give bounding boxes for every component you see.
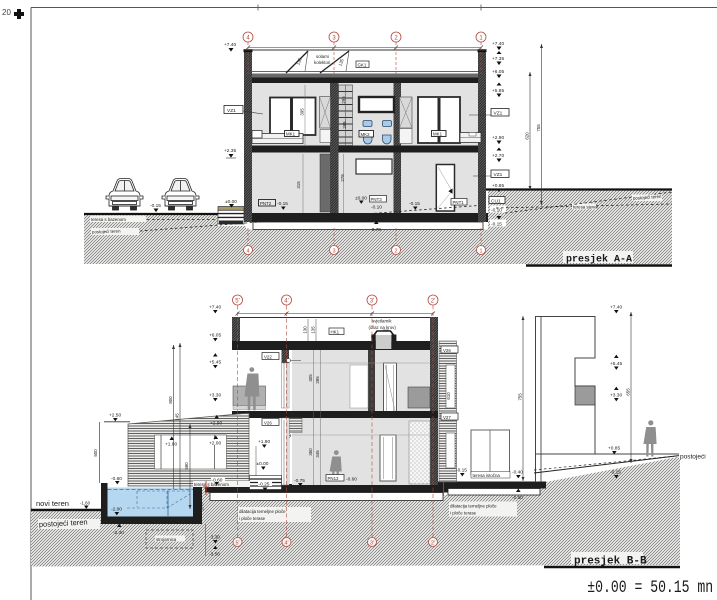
svg-text:-0.15: -0.15 (491, 222, 502, 228)
svg-text:-0.10: -0.10 (491, 208, 502, 214)
svg-text:-0.15: -0.15 (150, 203, 161, 209)
svg-text:+2.70: +2.70 (492, 153, 504, 159)
svg-text:strojarnica: strojarnica (156, 537, 177, 542)
svg-text:-0.15: -0.15 (409, 201, 420, 207)
svg-text:3': 3' (370, 299, 374, 305)
svg-text:(izlaz na krov): (izlaz na krov) (369, 325, 397, 330)
svg-text:teresa sjever: teresa sjever (573, 205, 599, 210)
svg-text:3': 3' (370, 540, 374, 546)
svg-text:+5.45: +5.45 (610, 361, 622, 367)
svg-text:CU1: CU1 (491, 198, 501, 204)
svg-text:dilatacija temeljne ploče: dilatacija temeljne ploče (450, 504, 497, 509)
svg-text:755: 755 (536, 124, 541, 132)
svg-text:4': 4' (284, 299, 288, 305)
svg-text:VZ1: VZ1 (494, 172, 503, 178)
svg-text:+7.35: +7.35 (492, 56, 504, 62)
svg-text:-3.56: -3.56 (209, 552, 220, 558)
svg-text:VZ1: VZ1 (494, 111, 503, 117)
svg-text:kolektori: kolektori (314, 60, 330, 65)
svg-text:i ploče terase: i ploče terase (450, 511, 477, 516)
svg-text:PNT1: PNT1 (453, 200, 465, 205)
svg-text:+1.00: +1.00 (165, 442, 177, 448)
svg-text:-0.15: -0.15 (456, 468, 467, 474)
svg-text:-2.30: -2.30 (113, 530, 124, 536)
svg-text:+2.90: +2.90 (210, 421, 222, 427)
svg-text:MK2: MK2 (361, 132, 371, 137)
svg-text:-0.50: -0.50 (512, 495, 523, 501)
svg-text:655: 655 (626, 388, 631, 396)
svg-text:MK1: MK1 (286, 132, 296, 137)
svg-text:+5.45: +5.45 (209, 360, 221, 366)
svg-text:-0.15: -0.15 (610, 470, 621, 476)
svg-text:MK1: MK1 (433, 132, 443, 137)
svg-text:+3.30: +3.30 (209, 393, 221, 399)
svg-text:-1.60: -1.60 (80, 501, 91, 506)
svg-text:270: 270 (200, 503, 205, 511)
svg-text:+1.90: +1.90 (258, 439, 270, 445)
svg-text:i ploče terase: i ploče terase (239, 516, 266, 521)
svg-text:+6.05: +6.05 (209, 333, 221, 339)
svg-text:GK1: GK1 (358, 62, 367, 67)
svg-text:novi teren: novi teren (36, 499, 69, 508)
svg-text:20: 20 (2, 8, 11, 17)
svg-text:+0.85: +0.85 (608, 446, 620, 452)
svg-text:1: 1 (479, 248, 482, 254)
svg-text:-0.60: -0.60 (346, 477, 357, 483)
svg-text:PNT2: PNT2 (260, 201, 272, 206)
svg-text:+2.00: +2.00 (209, 441, 221, 447)
svg-text:±0.00 = 50.15 mn: ±0.00 = 50.15 mn (587, 577, 713, 597)
svg-text:+6.05: +6.05 (492, 69, 504, 75)
svg-text:teresa s bazenom: teresa s bazenom (91, 217, 126, 222)
svg-text:postojeći: postojeći (680, 454, 706, 461)
svg-text:V27: V27 (443, 415, 451, 420)
svg-text:-2.00: -2.00 (111, 507, 122, 513)
svg-text:+0.85: +0.85 (492, 183, 504, 189)
svg-text:+7.40: +7.40 (224, 42, 236, 48)
svg-text:295: 295 (341, 96, 346, 104)
svg-text:+5.85: +5.85 (492, 88, 504, 94)
svg-text:2: 2 (394, 248, 397, 254)
svg-text:+2.35: +2.35 (224, 148, 236, 154)
svg-text:130: 130 (303, 326, 308, 334)
svg-text:345: 345 (315, 450, 320, 458)
svg-text:V22: V22 (264, 354, 272, 359)
svg-text:395: 395 (300, 108, 305, 116)
svg-text:5': 5' (235, 299, 239, 305)
svg-text:360: 360 (308, 448, 313, 456)
svg-text:dilatacija temeljne ploče: dilatacija temeljne ploče (239, 509, 286, 514)
svg-text:4: 4 (246, 248, 249, 254)
svg-text:presjek A-A: presjek A-A (566, 254, 632, 266)
svg-text:278: 278 (340, 174, 345, 182)
svg-text:V26: V26 (264, 420, 272, 425)
svg-text:+2.50: +2.50 (109, 413, 121, 419)
svg-text:500: 500 (93, 449, 98, 457)
svg-text:+7.40: +7.40 (492, 41, 504, 47)
svg-text:800: 800 (168, 396, 173, 404)
svg-text:-0.25: -0.25 (259, 482, 270, 488)
svg-text:620: 620 (525, 132, 530, 140)
svg-text:3: 3 (332, 248, 335, 254)
svg-text:postojeći teren: postojeći teren (92, 228, 121, 234)
svg-text:solarni: solarni (316, 54, 329, 59)
svg-text:+7.40: +7.40 (610, 305, 622, 311)
svg-text:135: 135 (311, 326, 316, 334)
svg-text:+2.90: +2.90 (492, 135, 504, 141)
svg-text:755: 755 (518, 393, 523, 401)
svg-text:+3.30: +3.30 (610, 393, 622, 399)
svg-text:285: 285 (315, 376, 320, 384)
svg-text:4': 4' (284, 540, 288, 546)
svg-text:-0.10: -0.10 (371, 205, 382, 211)
svg-text:-0.70: -0.70 (370, 227, 381, 233)
svg-text:315: 315 (296, 181, 301, 189)
svg-text:±0.00: ±0.00 (257, 461, 269, 467)
svg-text:145: 145 (175, 413, 180, 421)
svg-text:-0.15: -0.15 (277, 201, 288, 207)
svg-text:580: 580 (184, 462, 189, 470)
svg-text:2': 2' (431, 299, 435, 305)
svg-text:-0.40: -0.40 (512, 470, 523, 476)
svg-text:PNT3: PNT3 (371, 197, 383, 202)
svg-text:+7.40: +7.40 (209, 305, 221, 311)
svg-text:V26: V26 (443, 348, 451, 353)
svg-text:svjetlarnik: svjetlarnik (372, 319, 392, 324)
svg-text:VZ1: VZ1 (227, 108, 236, 114)
svg-text:285: 285 (342, 121, 347, 129)
svg-text:610: 610 (446, 392, 451, 400)
svg-text:teresa istočna: teresa istočna (473, 473, 501, 478)
svg-text:2': 2' (431, 540, 435, 546)
svg-text:-3.30: -3.30 (209, 535, 220, 541)
svg-text:305: 305 (308, 374, 313, 382)
svg-text:PN13: PN13 (328, 476, 340, 481)
svg-text:HK1: HK1 (331, 329, 340, 334)
svg-text:5': 5' (235, 540, 239, 546)
